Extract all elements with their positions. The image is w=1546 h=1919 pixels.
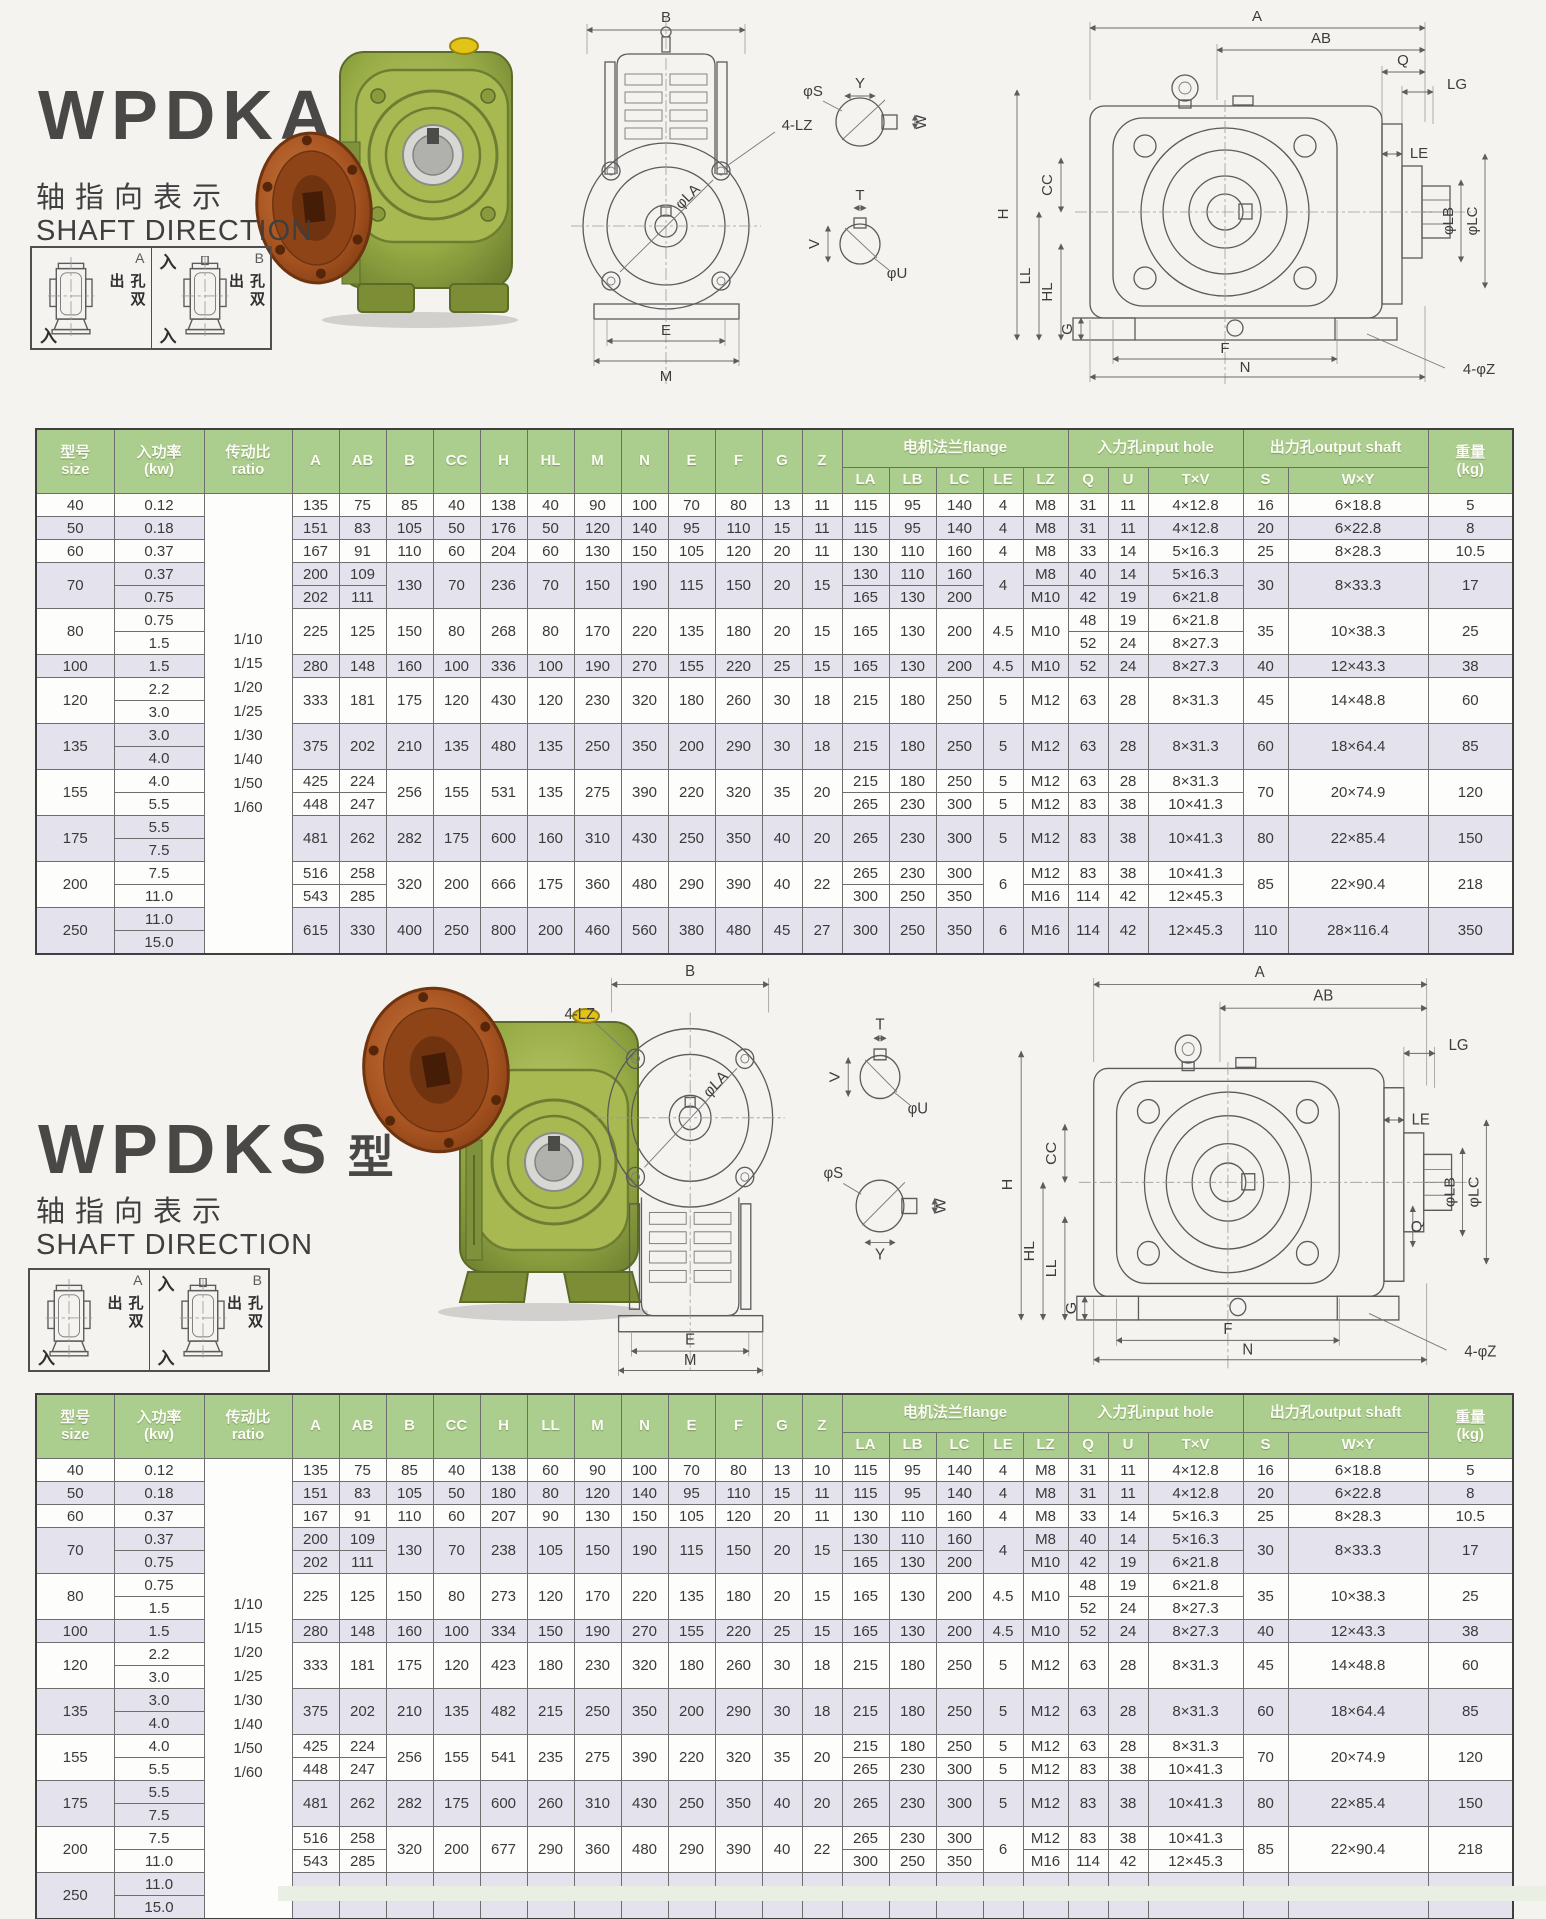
table-cell: 130 — [889, 609, 936, 655]
table-cell: 120 — [527, 1574, 574, 1620]
table-cell: 20 — [1243, 517, 1288, 540]
table-cell: 350 — [715, 816, 762, 862]
table-cell: 120 — [36, 678, 114, 724]
dim-label-y: Y — [875, 1246, 886, 1264]
table-cell: M8 — [1023, 1482, 1068, 1505]
table-cell: 4×12.8 — [1148, 1482, 1243, 1505]
table-cell: 80 — [715, 494, 762, 517]
table-cell: 40 — [762, 1827, 802, 1873]
dim-label-cc: CC — [1043, 1142, 1059, 1165]
table-cell: 38 — [1108, 1827, 1148, 1850]
table-cell: 63 — [1068, 770, 1108, 793]
shaft-diagram-b: 入 B 孔双出 入 — [150, 1270, 269, 1370]
table-cell: 160 — [936, 540, 983, 563]
column-header: B — [386, 1394, 433, 1459]
table-cell: 218 — [1428, 1827, 1513, 1873]
table-cell: 5 — [983, 1758, 1023, 1781]
dim-label-phi-lb: φLB — [1440, 207, 1457, 235]
table-cell: 120 — [527, 678, 574, 724]
table-cell: 35 — [1243, 609, 1288, 655]
table-cell: 10×41.3 — [1148, 1781, 1243, 1827]
table-cell: 140 — [621, 517, 668, 540]
table-cell: 5.5 — [114, 793, 204, 816]
dim-label-f: F — [1220, 340, 1229, 357]
table-cell: 10×41.3 — [1148, 1827, 1243, 1850]
table-cell: 202 — [292, 1551, 339, 1574]
table-cell: 215 — [527, 1689, 574, 1735]
table-cell: 40 — [527, 494, 574, 517]
table-cell: 425 — [292, 1735, 339, 1758]
table-cell: 70 — [1243, 1735, 1288, 1781]
table-cell: 300 — [936, 1758, 983, 1781]
table-cell: 300 — [936, 1781, 983, 1827]
table-cell: 4 — [983, 517, 1023, 540]
table-cell: 336 — [480, 655, 527, 678]
table-cell: 320 — [621, 678, 668, 724]
table-cell: M12 — [1023, 1827, 1068, 1850]
table-cell: 11 — [802, 494, 842, 517]
table-cell: 110 — [889, 540, 936, 563]
table-cell: 5 — [1428, 494, 1513, 517]
table-cell: 85 — [386, 1459, 433, 1482]
column-header: LL — [527, 1394, 574, 1459]
table-cell: 8×31.3 — [1148, 678, 1243, 724]
table-cell: 100 — [621, 494, 668, 517]
column-header: 入力孔input hole — [1068, 429, 1243, 468]
table-cell: 0.18 — [114, 517, 204, 540]
table-cell: 160 — [936, 1528, 983, 1551]
table-cell: 140 — [936, 1482, 983, 1505]
table-cell: 0.37 — [114, 563, 204, 586]
table-cell: 22×90.4 — [1288, 1827, 1428, 1873]
table-cell: 320 — [386, 1827, 433, 1873]
table-cell: 140 — [936, 517, 983, 540]
table-cell: 330 — [339, 908, 386, 955]
table-cell: 11 — [1108, 517, 1148, 540]
table-cell: 0.37 — [114, 1528, 204, 1551]
table-cell: 11 — [1108, 494, 1148, 517]
table-cell: 204 — [480, 540, 527, 563]
table-cell: 80 — [715, 1459, 762, 1482]
table-cell: 120 — [715, 1505, 762, 1528]
table-cell: 120 — [715, 540, 762, 563]
table-cell: 190 — [621, 1528, 668, 1574]
table-cell: 30 — [762, 724, 802, 770]
table-cell: 5 — [983, 724, 1023, 770]
dimension-drawing-wpdka: B φLA 4-LZ E — [545, 4, 1545, 389]
table-cell: 38 — [1108, 1781, 1148, 1827]
table-cell: 19 — [1108, 586, 1148, 609]
table-cell: 110 — [715, 1482, 762, 1505]
table-cell: 31 — [1068, 1482, 1108, 1505]
column-header: 传动比 ratio — [204, 1394, 292, 1459]
table-cell: 3.0 — [114, 701, 204, 724]
column-header: 重量 (kg) — [1428, 429, 1513, 494]
shaft-direction-diagram-wpdks: A 孔双出 入 入 B 孔双出 入 — [28, 1268, 270, 1372]
table-cell: 270 — [621, 1620, 668, 1643]
table-cell: 11.0 — [114, 1850, 204, 1873]
table-cell: 5 — [1428, 1459, 1513, 1482]
table-cell: 40 — [762, 1781, 802, 1827]
table-cell: 4.5 — [983, 1620, 1023, 1643]
table-cell: 15 — [802, 655, 842, 678]
table-cell: 250 — [574, 1689, 621, 1735]
table-cell: 1/10 1/15 1/20 1/25 1/30 1/40 1/50 1/60 — [204, 494, 292, 955]
table-cell: 2.2 — [114, 678, 204, 701]
table-cell: 170 — [574, 1574, 621, 1620]
table-cell: 150 — [574, 1528, 621, 1574]
table-cell: 10.5 — [1428, 1505, 1513, 1528]
dim-label-t: T — [875, 1016, 885, 1034]
table-cell: 4.5 — [983, 1574, 1023, 1620]
table-cell: 282 — [386, 1781, 433, 1827]
table-cell: 6×22.8 — [1288, 517, 1428, 540]
table-cell: 200 — [936, 586, 983, 609]
table-cell: 75 — [339, 1459, 386, 1482]
table-cell: 135 — [668, 609, 715, 655]
table-cell: 110 — [889, 1528, 936, 1551]
table-cell: 4 — [983, 1505, 1023, 1528]
table-cell: 265 — [842, 1758, 889, 1781]
table-cell: 15 — [762, 517, 802, 540]
table-cell: 52 — [1068, 655, 1108, 678]
table-cell: 1.5 — [114, 655, 204, 678]
table-cell: 11 — [802, 540, 842, 563]
table-cell: 270 — [621, 655, 668, 678]
table-cell: 160 — [527, 816, 574, 862]
table-cell: 25 — [762, 655, 802, 678]
table-cell: 175 — [433, 816, 480, 862]
table-cell: 110 — [386, 1505, 433, 1528]
table-cell: 28 — [1108, 724, 1148, 770]
table-cell: 40 — [1068, 563, 1108, 586]
table-cell: 0.37 — [114, 1505, 204, 1528]
table-cell: 4.0 — [114, 1712, 204, 1735]
table-cell: 135 — [668, 1574, 715, 1620]
model-name: WPDKS — [38, 1110, 334, 1188]
column-header: H — [480, 1394, 527, 1459]
table-cell: 290 — [715, 724, 762, 770]
table-cell: 180 — [889, 1735, 936, 1758]
table-cell: 250 — [36, 908, 114, 955]
table-cell: 230 — [889, 1758, 936, 1781]
table-cell: 160 — [936, 1505, 983, 1528]
table-cell: 6×18.8 — [1288, 1459, 1428, 1482]
diagram-side-text: 孔双出 — [225, 273, 267, 323]
dim-label-w: W — [933, 1198, 949, 1214]
column-header: U — [1108, 1433, 1148, 1459]
table-cell: 181 — [339, 1643, 386, 1689]
table-cell: 155 — [433, 770, 480, 816]
table-cell: 22×85.4 — [1288, 816, 1428, 862]
column-header: LZ — [1023, 1433, 1068, 1459]
table-cell: 230 — [574, 1643, 621, 1689]
table-cell: 90 — [574, 1459, 621, 1482]
table-cell: 20×74.9 — [1288, 1735, 1428, 1781]
table-cell: 10×38.3 — [1288, 609, 1428, 655]
table-cell: 236 — [480, 563, 527, 609]
column-header: G — [762, 1394, 802, 1459]
table-cell: 20 — [1243, 1482, 1288, 1505]
dim-label-phi-lb: φLB — [1442, 1177, 1458, 1207]
table-cell: 0.18 — [114, 1482, 204, 1505]
table-cell: 115 — [668, 563, 715, 609]
table-cell: 50 — [527, 517, 574, 540]
table-cell: M12 — [1023, 862, 1068, 885]
dim-label-ll: LL — [1017, 268, 1034, 285]
dim-label-phi-s: φS — [823, 1165, 843, 1183]
table-cell: 70 — [668, 1459, 715, 1482]
table-cell: 14 — [1108, 1505, 1148, 1528]
table-cell: 45 — [1243, 1643, 1288, 1689]
dim-label-phi-u: φU — [887, 265, 908, 282]
table-cell: 110 — [889, 563, 936, 586]
table-cell: 260 — [715, 1643, 762, 1689]
table-cell: 130 — [386, 1528, 433, 1574]
table-cell: 165 — [842, 1551, 889, 1574]
dim-label-hl: HL — [1022, 1240, 1038, 1261]
wpdks-dimension-table: 型号 size入功率 (kw)传动比 ratioAABBCCHLLMNEFGZ电… — [35, 1393, 1514, 1919]
table-cell: 70 — [433, 563, 480, 609]
table-cell: 80 — [1243, 816, 1288, 862]
table-cell: 15 — [802, 563, 842, 609]
table-cell: 8×27.3 — [1148, 1620, 1243, 1643]
column-header: W×Y — [1288, 1433, 1428, 1459]
table-cell: 70 — [527, 563, 574, 609]
table-cell: 165 — [842, 609, 889, 655]
table-cell: 175 — [36, 816, 114, 862]
table-cell: 11.0 — [114, 908, 204, 931]
table-cell: 5 — [983, 678, 1023, 724]
table-cell: 175 — [386, 1643, 433, 1689]
table-cell: 135 — [527, 724, 574, 770]
table-cell: 430 — [480, 678, 527, 724]
table-cell: 20 — [762, 563, 802, 609]
table-cell: 40 — [36, 1459, 114, 1482]
table-cell: 35 — [1243, 1574, 1288, 1620]
table-cell: 125 — [339, 609, 386, 655]
table-cell: 30 — [762, 678, 802, 724]
table-cell: 7.5 — [114, 1804, 204, 1827]
table-cell: 111 — [339, 1551, 386, 1574]
dim-label-v: V — [827, 1071, 843, 1082]
dim-label-b: B — [685, 962, 695, 980]
table-cell: 250 — [936, 678, 983, 724]
table-cell: 42 — [1068, 586, 1108, 609]
table-cell: 273 — [480, 1574, 527, 1620]
table-cell: 38 — [1428, 1620, 1513, 1643]
table-cell: 4.0 — [114, 770, 204, 793]
shaft-diagram-a: A 孔双出 入 — [32, 248, 152, 348]
table-cell: 3.0 — [114, 1689, 204, 1712]
dim-label-ab: AB — [1311, 30, 1331, 47]
table-cell: 80 — [1243, 1781, 1288, 1827]
dim-label-w: W — [913, 114, 930, 129]
table-cell: 38 — [1428, 655, 1513, 678]
table-cell: 24 — [1108, 655, 1148, 678]
table-cell: 18 — [802, 678, 842, 724]
table-cell: 120 — [574, 517, 621, 540]
table-cell: 15 — [802, 609, 842, 655]
table-cell: 175 — [386, 678, 433, 724]
table-cell: 256 — [386, 1735, 433, 1781]
table-cell: 110 — [715, 517, 762, 540]
table-cell: 28 — [1108, 1735, 1148, 1758]
table-cell: 80 — [527, 1482, 574, 1505]
table-cell: 202 — [339, 1689, 386, 1735]
table-cell: 105 — [668, 540, 715, 563]
table-cell: 38 — [1108, 1758, 1148, 1781]
dim-label-4phiz: 4-φZ — [1463, 361, 1495, 378]
gearbox-glyph — [178, 1278, 228, 1360]
table-cell: 100 — [621, 1459, 668, 1482]
table-cell: 11.0 — [114, 885, 204, 908]
table-cell: 35 — [762, 770, 802, 816]
table-cell: M12 — [1023, 770, 1068, 793]
table-cell: 151 — [292, 517, 339, 540]
table-cell: 138 — [480, 1459, 527, 1482]
table-cell: 8×27.3 — [1148, 655, 1243, 678]
table-cell: 155 — [36, 770, 114, 816]
table-cell: 110 — [386, 540, 433, 563]
table-cell: 63 — [1068, 724, 1108, 770]
table-cell: 531 — [480, 770, 527, 816]
table-cell: 130 — [889, 586, 936, 609]
table-cell: 75 — [339, 494, 386, 517]
table-cell: 70 — [36, 1528, 114, 1574]
table-cell: 238 — [480, 1528, 527, 1574]
table-cell: 6×21.8 — [1148, 586, 1243, 609]
table-cell: 5 — [983, 1689, 1023, 1735]
table-cell: 282 — [386, 816, 433, 862]
table-cell: 28 — [1108, 1689, 1148, 1735]
table-cell: 250 — [936, 770, 983, 793]
table-cell: 8×31.3 — [1148, 724, 1243, 770]
diagram-in-text: 入 — [158, 1344, 175, 1369]
table-cell: 260 — [527, 1781, 574, 1827]
dim-label-le: LE — [1412, 1111, 1430, 1129]
table-cell: 5.5 — [114, 1781, 204, 1804]
dim-label-lg: LG — [1447, 76, 1467, 93]
table-cell: 11 — [1108, 1459, 1148, 1482]
dim-label-le: LE — [1410, 145, 1428, 162]
table-cell: 800 — [480, 908, 527, 955]
table-cell: 40 — [762, 862, 802, 908]
table-cell: 11.0 — [114, 1873, 204, 1896]
table-cell: 50 — [433, 517, 480, 540]
table-cell: 60 — [527, 1459, 574, 1482]
table-cell: 0.75 — [114, 1551, 204, 1574]
table-cell: 4.5 — [983, 609, 1023, 655]
gearbox-photo-illustration — [252, 22, 520, 330]
table-cell: 8×31.3 — [1148, 1735, 1243, 1758]
table-cell: 155 — [668, 1620, 715, 1643]
table-cell: 130 — [889, 655, 936, 678]
shaft-direction-en: SHAFT DIRECTION — [36, 215, 313, 248]
table-cell: 150 — [1428, 1781, 1513, 1827]
table-cell: 8×31.3 — [1148, 770, 1243, 793]
table-cell: 320 — [715, 770, 762, 816]
table-cell: 8×31.3 — [1148, 1643, 1243, 1689]
table-cell: 390 — [621, 1735, 668, 1781]
table-cell: 6×22.8 — [1288, 1482, 1428, 1505]
table-cell: 5×16.3 — [1148, 563, 1243, 586]
table-cell: 215 — [842, 770, 889, 793]
table-cell: 430 — [621, 1781, 668, 1827]
table-cell: 52 — [1068, 1620, 1108, 1643]
table-row: 400.121/10 1/15 1/20 1/25 1/30 1/40 1/50… — [36, 494, 1513, 517]
table-cell: 230 — [889, 1827, 936, 1850]
table-cell: 480 — [621, 862, 668, 908]
table-cell: 40 — [1243, 1620, 1288, 1643]
shaft-direction-heading-wpdks: 轴指向表示 SHAFT DIRECTION — [36, 1196, 313, 1263]
table-cell: 16 — [1243, 1459, 1288, 1482]
table-cell: 20 — [802, 770, 842, 816]
table-cell: 7.5 — [114, 1827, 204, 1850]
table-cell: 25 — [762, 1620, 802, 1643]
table-cell: 42 — [1108, 885, 1148, 908]
table-cell: 180 — [715, 1574, 762, 1620]
table-cell: 125 — [339, 1574, 386, 1620]
table-cell: 60 — [36, 540, 114, 563]
table-cell: 70 — [433, 1528, 480, 1574]
table-cell: 5×16.3 — [1148, 1528, 1243, 1551]
table-cell: 0.37 — [114, 540, 204, 563]
table-cell: 300 — [936, 816, 983, 862]
dim-label-n: N — [1242, 1341, 1253, 1359]
column-header: AB — [339, 1394, 386, 1459]
table-cell: 14 — [1108, 563, 1148, 586]
table-cell: 11 — [802, 517, 842, 540]
table-cell: 91 — [339, 540, 386, 563]
table-cell: 190 — [574, 655, 621, 678]
table-cell: 258 — [339, 1827, 386, 1850]
table-cell: 60 — [1428, 678, 1513, 724]
table-cell: 135 — [292, 1459, 339, 1482]
table-cell: 130 — [574, 540, 621, 563]
table-cell: 160 — [386, 655, 433, 678]
table-cell: M10 — [1023, 1551, 1068, 1574]
column-header: Z — [802, 429, 842, 494]
column-header: F — [715, 429, 762, 494]
table-cell: 91 — [339, 1505, 386, 1528]
table-cell: 45 — [1243, 678, 1288, 724]
table-cell: 275 — [574, 1735, 621, 1781]
table-cell: 130 — [889, 1551, 936, 1574]
table-cell: 215 — [842, 1689, 889, 1735]
table-cell: M8 — [1023, 1459, 1068, 1482]
table-cell: 0.75 — [114, 1574, 204, 1597]
table-cell: 200 — [36, 1827, 114, 1873]
table-cell: 115 — [842, 494, 889, 517]
table-cell: 480 — [621, 1827, 668, 1873]
table-cell: 10×41.3 — [1148, 793, 1243, 816]
table-cell: 60 — [36, 1505, 114, 1528]
dim-label-g: G — [1059, 323, 1076, 335]
table-cell: 120 — [433, 678, 480, 724]
table-cell: M12 — [1023, 724, 1068, 770]
table-cell: 275 — [574, 770, 621, 816]
table-cell: 256 — [386, 770, 433, 816]
table-cell: 320 — [386, 862, 433, 908]
page-footer-rule — [278, 1886, 1546, 1901]
diagram-label-b: B — [253, 1272, 262, 1288]
table-cell: 14×48.8 — [1288, 1643, 1428, 1689]
table-cell: 155 — [36, 1735, 114, 1781]
table-cell: M8 — [1023, 540, 1068, 563]
table-cell: 19 — [1108, 1551, 1148, 1574]
table-cell: 60 — [1243, 724, 1288, 770]
